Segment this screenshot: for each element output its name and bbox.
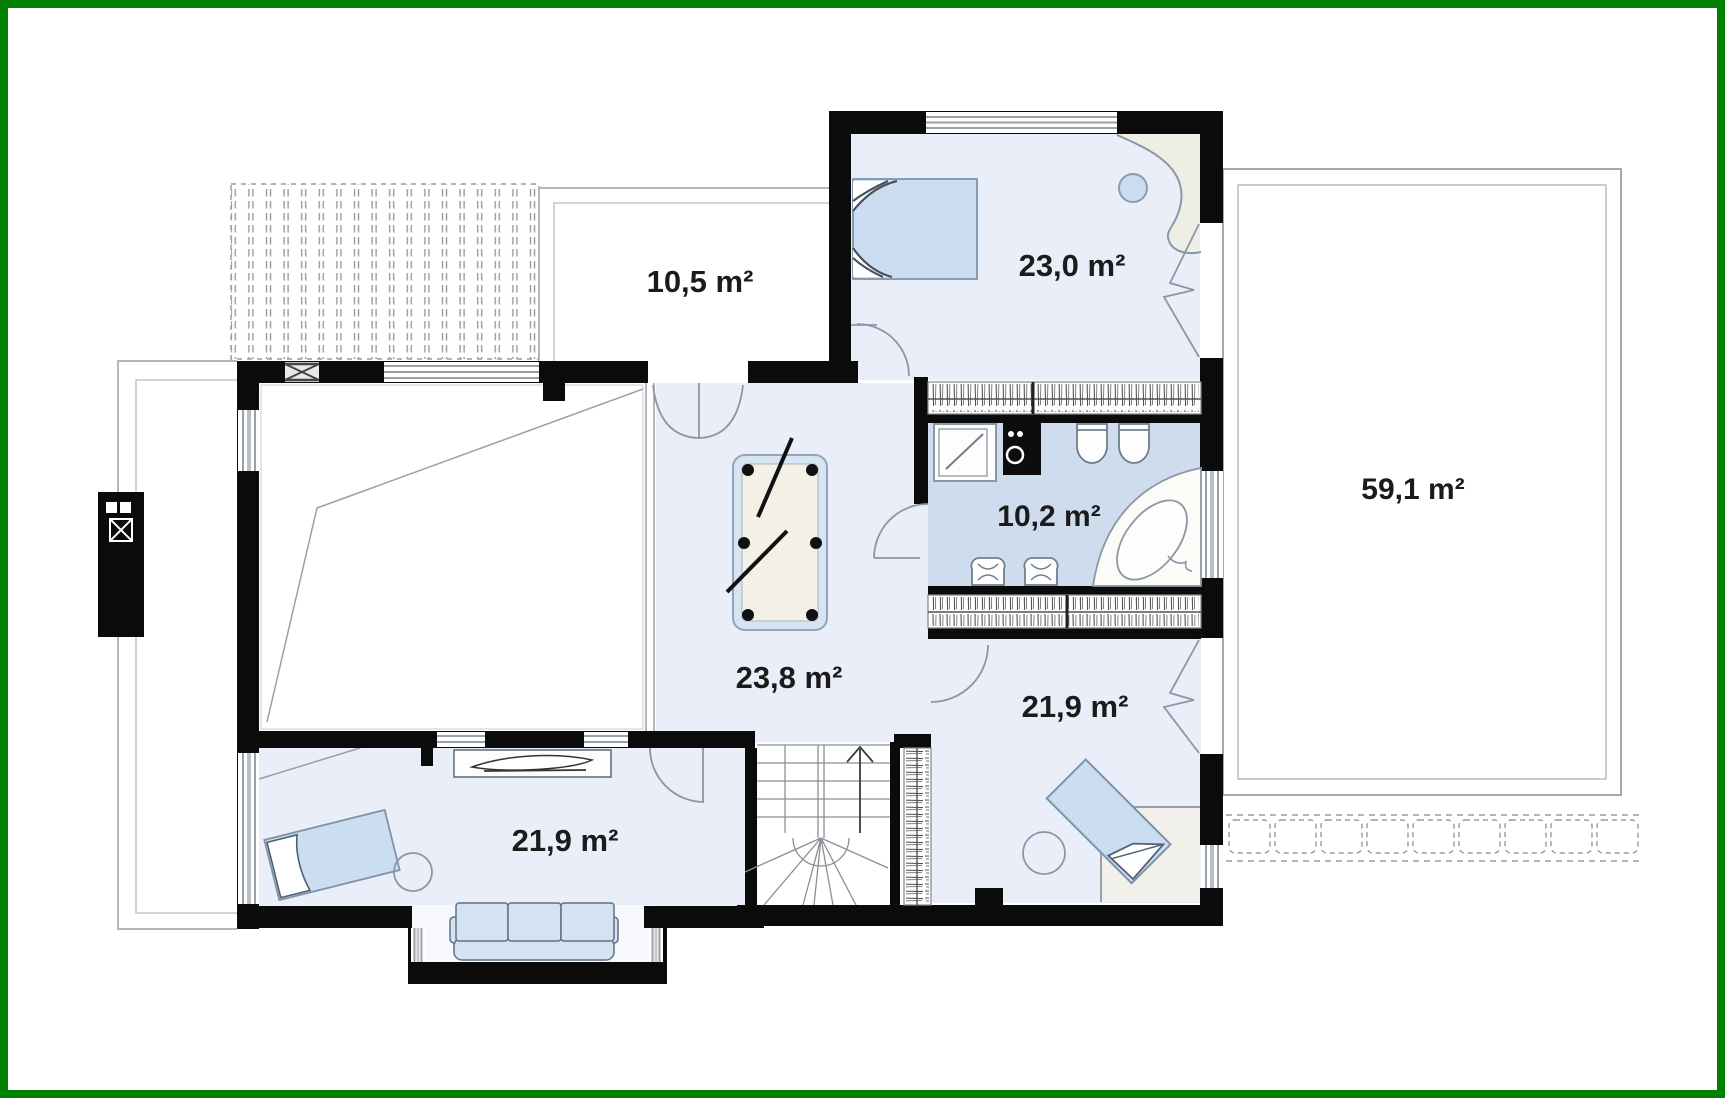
- svg-text:10,5 m²: 10,5 m²: [647, 264, 754, 299]
- svg-text:21,9 m²: 21,9 m²: [1022, 689, 1129, 724]
- svg-text:10,2 m²: 10,2 m²: [997, 500, 1100, 533]
- svg-text:23,8 m²: 23,8 m²: [736, 660, 843, 695]
- svg-text:23,0 m²: 23,0 m²: [1019, 248, 1126, 283]
- svg-text:59,1 m²: 59,1 m²: [1361, 473, 1464, 506]
- svg-text:21,9 m²: 21,9 m²: [512, 823, 619, 858]
